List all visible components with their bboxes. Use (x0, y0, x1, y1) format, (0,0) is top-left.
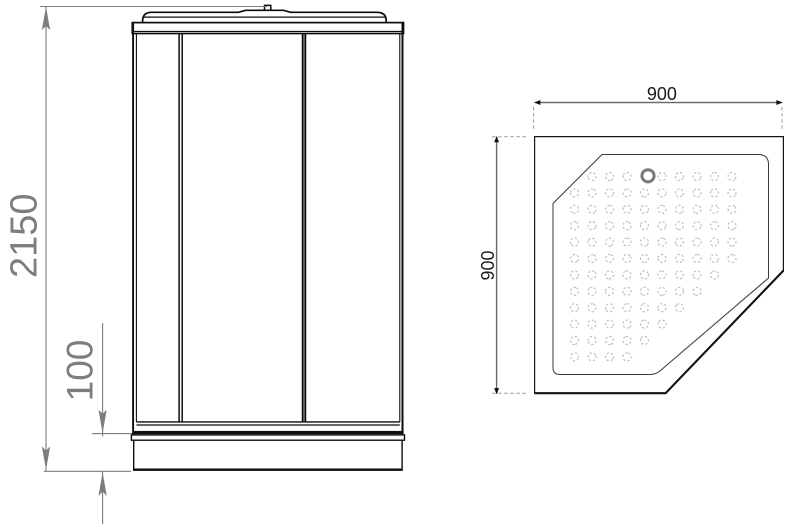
svg-text:2150: 2150 (3, 194, 45, 279)
svg-text:900: 900 (478, 250, 498, 280)
svg-text:900: 900 (647, 84, 677, 104)
svg-text:100: 100 (60, 340, 101, 402)
